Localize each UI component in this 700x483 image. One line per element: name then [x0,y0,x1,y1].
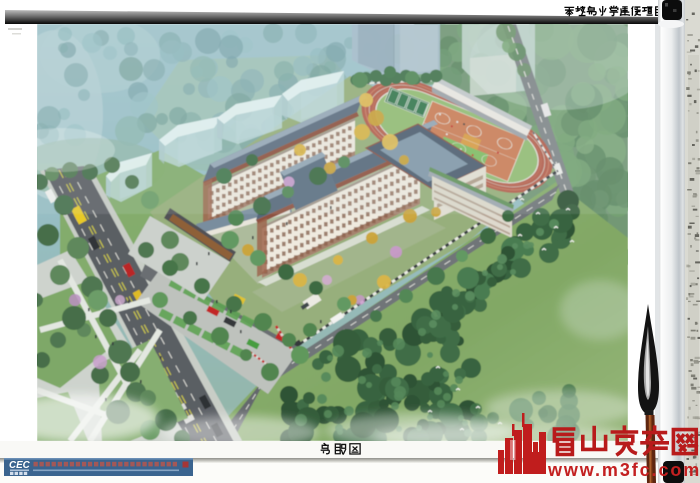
svg-text:www.m3fc.com: www.m3fc.com [547,460,700,480]
svg-text:CEC: CEC [9,460,31,471]
